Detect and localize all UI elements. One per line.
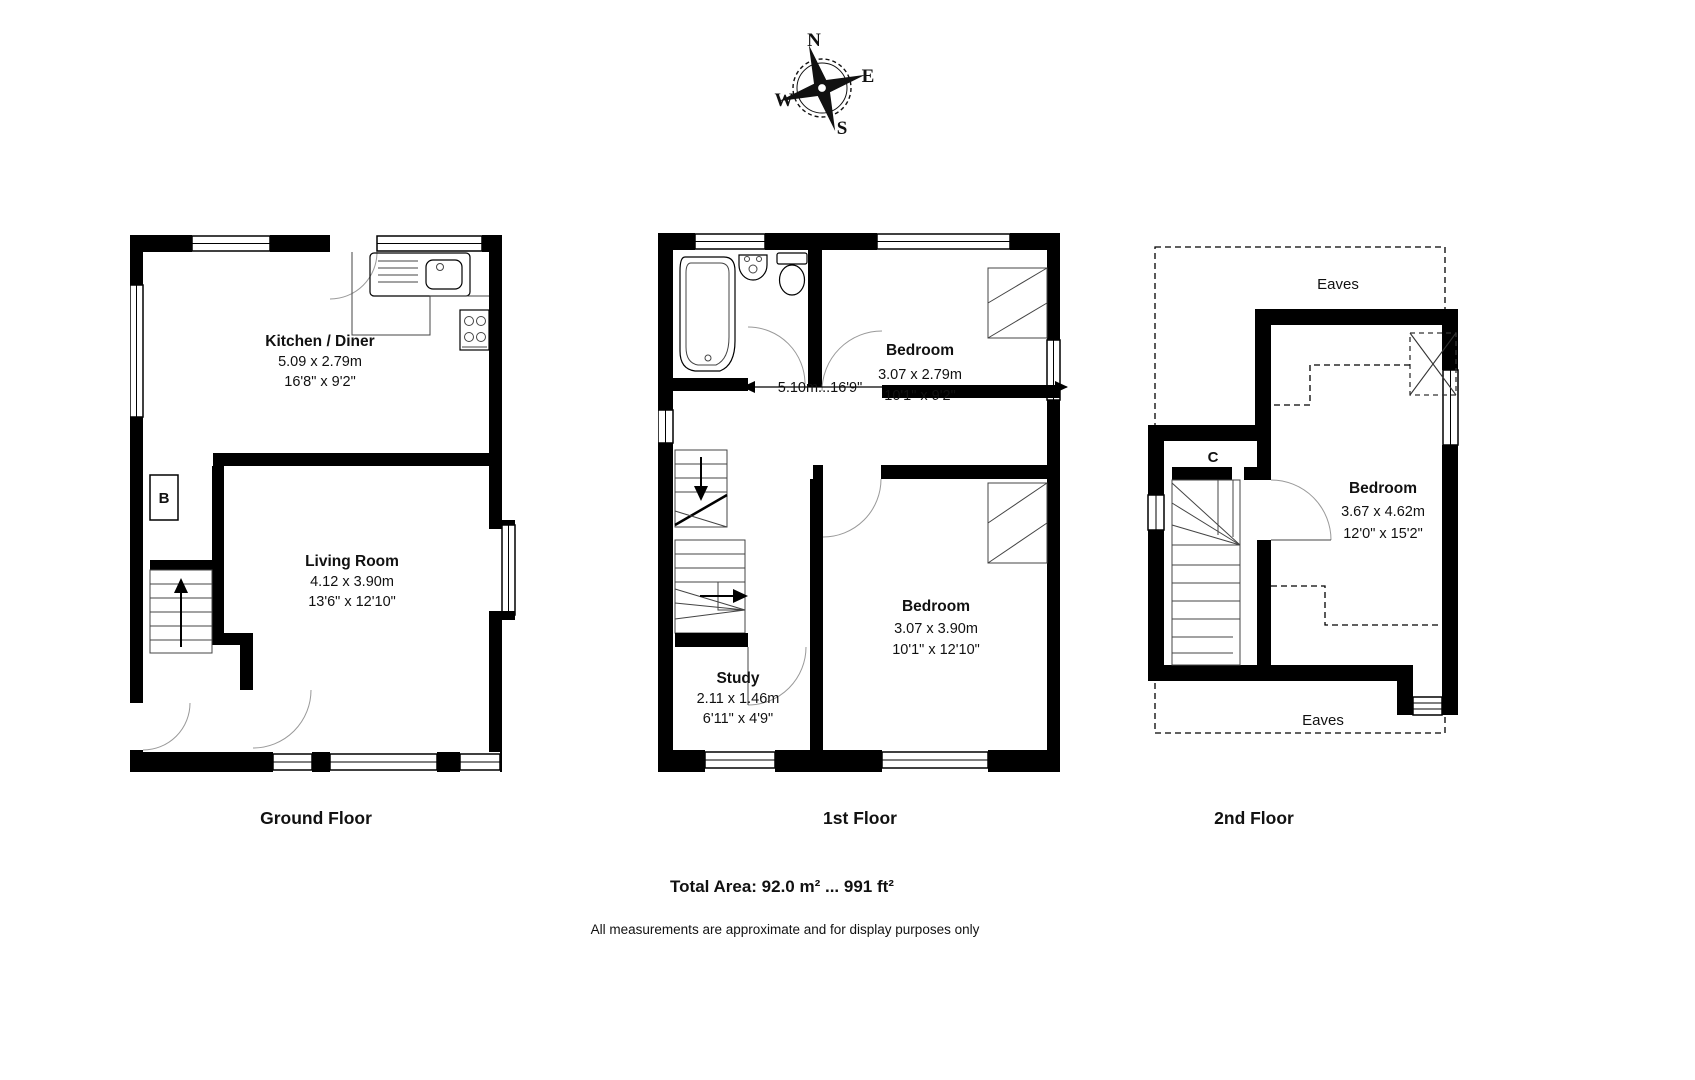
wardrobe-icon [988,268,1047,338]
total-area-text: Total Area: 92.0 m² ... 991 ft² [670,877,894,897]
kitchen-sink-unit [370,253,470,296]
room-size-metric: 2.11 x 1.46m [697,691,780,707]
bathtub-icon [680,257,735,371]
dimension-text: 5.10m...16'9" [778,380,863,396]
eaves-label-bottom: Eaves [1302,712,1344,729]
room-study: Study 2.11 x 1.46m 6'11" x 4'9" [697,670,780,727]
first-floor-title: 1st Floor [823,808,897,829]
room-size-metric: 3.67 x 4.62m [1341,504,1425,520]
headroom-line-lower [1271,586,1458,625]
room-size-metric: 5.09 x 2.79m [278,354,362,370]
compass-south-label: S [837,118,848,139]
floorplan-page: N E W S [0,0,1695,1080]
dormer-window [1413,697,1442,715]
room-kitchen-diner: Kitchen / Diner 5.09 x 2.79m 16'8" x 9'2… [265,333,374,390]
boiler-label: B [159,490,170,507]
second-floor-title: 2nd Floor [1214,808,1294,829]
first-floor-plan: 5.10m...16'9" Bedroom 3.07 x 2.79m 10'1"… [658,233,1073,772]
staircase-up-winder [675,540,748,633]
compass-hub [818,84,827,93]
compass-east-label: E [862,66,875,87]
bay-cap [489,611,515,620]
room-size-imperial: 10'1" x 12'10" [892,642,980,658]
room-size-metric: 3.07 x 2.79m [878,367,962,383]
room-name: Living Room [305,553,399,570]
room-living-room: Living Room 4.12 x 3.90m 13'6" x 12'10" [305,553,399,610]
room-size-imperial: 16'8" x 9'2" [284,374,355,390]
toilet-icon [777,253,807,295]
room-name: Kitchen / Diner [265,333,374,350]
compass-west-label: W [775,90,794,111]
cupboard-label: C [1208,449,1219,466]
hob-icon [460,310,489,350]
room-name: Bedroom [886,342,954,359]
bedroom2-door-arc [823,479,881,537]
room-size-imperial: 13'6" x 12'10" [308,594,396,610]
stair-wall [150,560,212,570]
front-door-arc [143,703,190,750]
bathroom-wall [808,250,822,387]
room-bedroom-1: Bedroom 3.07 x 2.79m 10'1" x 9'2" [878,342,962,404]
study-wall [810,479,823,750]
room-bedroom-3: Bedroom 3.67 x 4.62m 12'0" x 15'2" [1341,480,1425,542]
room-name: Study [716,670,759,687]
room-size-metric: 4.12 x 3.90m [310,574,394,590]
room-name: Bedroom [1349,480,1417,497]
bedroom-door-arc [1271,480,1331,540]
room-bedroom-2: Bedroom 3.07 x 3.90m 10'1" x 12'10" [892,598,980,658]
winder-staircase [1172,480,1240,665]
wardrobe-icon [988,483,1047,563]
kitchen-counter-edge [352,252,489,335]
staircase-down [675,450,727,527]
compass-rose: N E W S [740,13,910,173]
room-size-imperial: 12'0" x 15'2" [1343,526,1423,542]
ground-floor-title: Ground Floor [260,808,372,829]
second-floor-plan: Eaves Eaves C [1068,225,1460,740]
room-name: Bedroom [902,598,970,615]
room-size-imperial: 6'11" x 4'9" [703,711,773,727]
hall-door-arc [253,690,311,748]
compass-north-label: N [807,30,821,51]
staircase-up [150,570,212,653]
washbasin-icon [739,255,767,280]
headroom-line-upper [1271,365,1410,405]
bathroom-door-arc [748,327,805,384]
eaves-label-top: Eaves [1317,276,1359,293]
room-size-imperial: 10'1" x 9'2" [884,388,955,404]
disclaimer-text: All measurements are approximate and for… [591,922,980,937]
room-size-metric: 3.07 x 3.90m [894,621,978,637]
ground-floor-plan: B [130,235,520,772]
